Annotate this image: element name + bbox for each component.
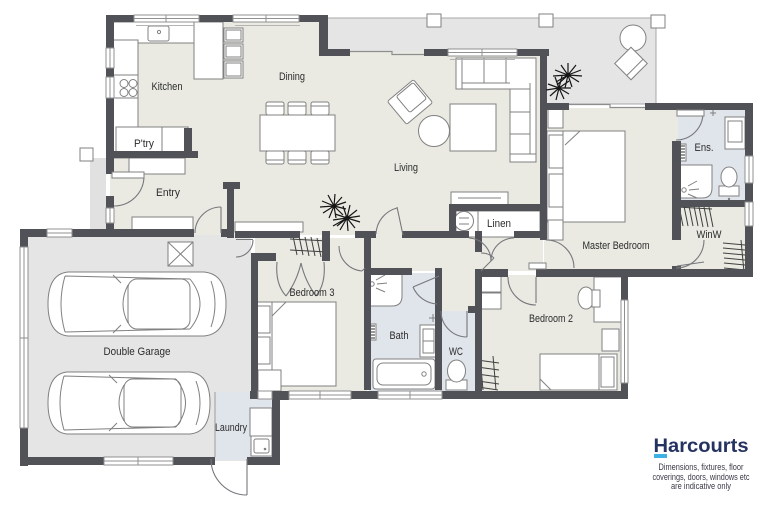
svg-text:P'try: P'try [134, 138, 154, 150]
svg-text:Bedroom 3: Bedroom 3 [290, 287, 335, 299]
svg-text:WinW: WinW [697, 229, 723, 241]
svg-text:Double Garage: Double Garage [104, 346, 171, 358]
svg-text:Kitchen: Kitchen [152, 81, 183, 93]
svg-text:Linen: Linen [487, 218, 511, 230]
svg-text:Dining: Dining [279, 71, 305, 83]
svg-text:Dimensions, fixtures, floor: Dimensions, fixtures, floor [659, 462, 744, 472]
svg-text:Laundry: Laundry [215, 422, 247, 434]
svg-text:Entry: Entry [156, 187, 180, 199]
svg-text:Master Bedroom: Master Bedroom [583, 240, 650, 252]
svg-text:Bath: Bath [390, 330, 409, 342]
svg-text:Harcourts: Harcourts [654, 436, 749, 457]
svg-text:Ens.: Ens. [695, 142, 714, 154]
svg-text:are indicative only: are indicative only [671, 481, 731, 491]
svg-text:Bedroom 2: Bedroom 2 [529, 313, 573, 325]
svg-text:WC: WC [449, 346, 463, 358]
svg-text:Living: Living [394, 162, 418, 174]
